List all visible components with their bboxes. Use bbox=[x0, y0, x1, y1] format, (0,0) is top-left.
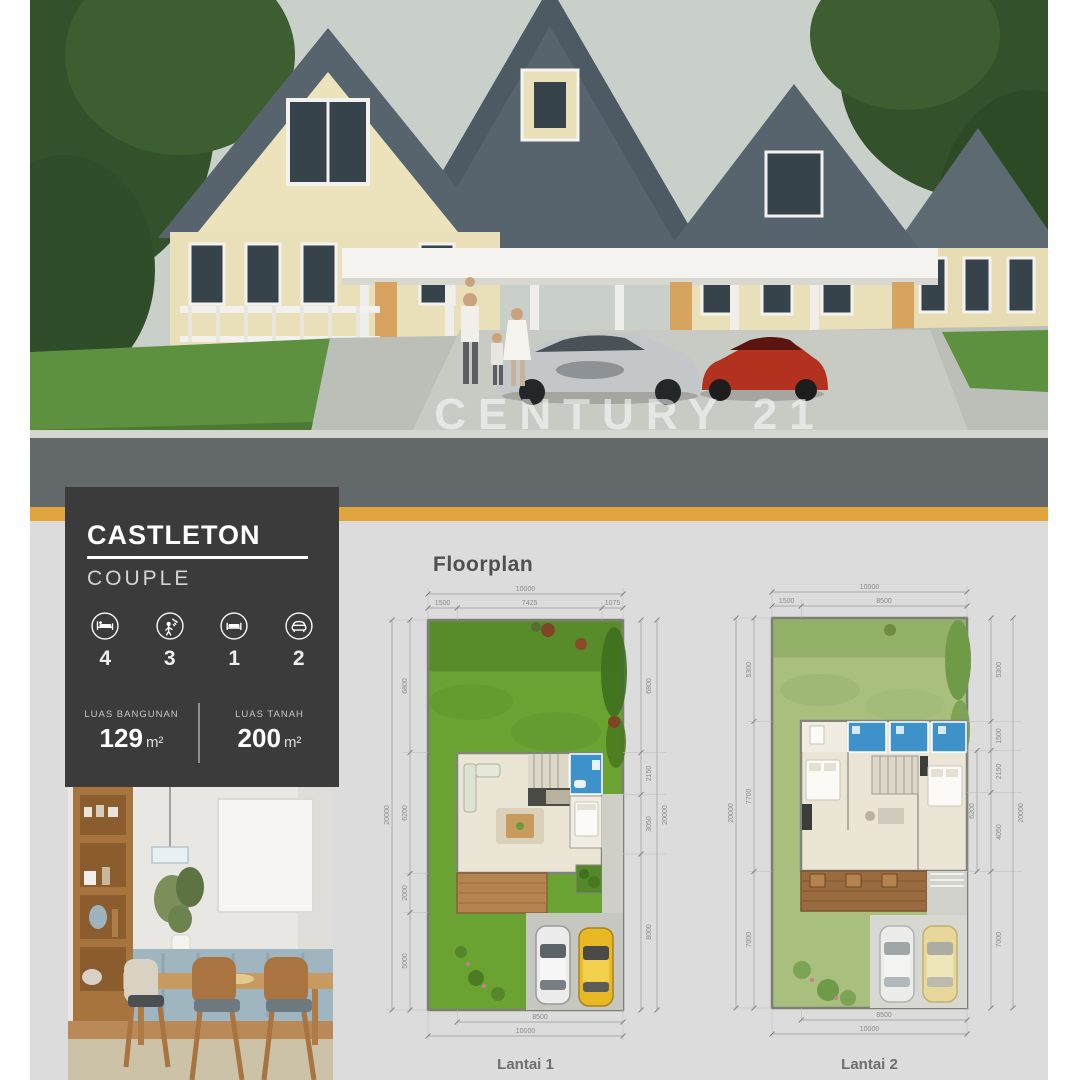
dim-bottom-inner: 8500 bbox=[532, 1014, 548, 1021]
house-photo: CENTURY 21 bbox=[30, 0, 1048, 507]
building-area-label: LUAS BANGUNAN bbox=[65, 709, 198, 720]
dim-right-seg: 3050 bbox=[646, 816, 653, 832]
dim-top-seg: 1075 bbox=[605, 600, 621, 607]
dim-right-inner: 6200 bbox=[969, 803, 976, 819]
title-underline bbox=[87, 556, 308, 559]
land-area-label: LUAS TANAH bbox=[200, 709, 339, 720]
floorplan-lantai-1: 10000 1500 7425 1075 20000 6800 6200 200… bbox=[376, 582, 676, 1052]
bedroom-count: 4 bbox=[99, 647, 111, 671]
car-yellow bbox=[579, 928, 613, 1006]
bed-icon bbox=[90, 611, 120, 641]
dim-left-total: 20000 bbox=[384, 805, 391, 825]
areas-row: LUAS BANGUNAN 129m² LUAS TANAH 200m² bbox=[65, 699, 339, 763]
dim-top-seg: 7425 bbox=[522, 600, 538, 607]
car-white bbox=[536, 926, 570, 1004]
dim-right-seg: 8000 bbox=[646, 924, 653, 940]
floorplan-heading: Floorplan bbox=[433, 553, 533, 577]
bathroom bbox=[932, 722, 966, 752]
carport-count: 2 bbox=[293, 647, 305, 671]
stairs bbox=[872, 756, 918, 794]
century21-watermark: CENTURY 21 bbox=[180, 390, 1048, 440]
dim-left-seg: 2000 bbox=[402, 885, 409, 901]
dim-bottom-inner: 8500 bbox=[876, 1012, 892, 1019]
dim-left-seg: 7700 bbox=[746, 789, 753, 805]
car-yellow-faded bbox=[923, 926, 957, 1002]
side-path bbox=[602, 794, 623, 913]
dim-left-seg: 5300 bbox=[746, 662, 753, 678]
property-type: COUPLE bbox=[87, 567, 191, 591]
interior-art bbox=[68, 787, 333, 1080]
building-area-value: 129m² bbox=[65, 723, 198, 754]
rug bbox=[68, 1039, 333, 1080]
dim-right-seg: 2150 bbox=[996, 764, 1003, 780]
dim-left-seg: 6800 bbox=[402, 678, 409, 694]
wood-shelf bbox=[73, 787, 133, 1035]
livingroom-count: 1 bbox=[228, 647, 240, 671]
lantai-2-label: Lantai 2 bbox=[772, 1056, 967, 1073]
dim-bottom-total: 10000 bbox=[860, 1026, 880, 1033]
car-icon bbox=[284, 611, 314, 641]
livingroom-stat: 1 bbox=[202, 611, 267, 671]
property-name: CASTLETON bbox=[87, 520, 261, 551]
dim-right-seg: 5300 bbox=[996, 662, 1003, 678]
property-info-card: CASTLETON COUPLE 4 3 bbox=[65, 487, 339, 787]
bathroom-stat: 3 bbox=[138, 611, 203, 671]
building-area-number: 129 bbox=[100, 723, 143, 753]
stats-row: 4 3 1 bbox=[73, 611, 331, 671]
balcony-chair bbox=[882, 874, 897, 887]
wall-frame bbox=[218, 799, 313, 912]
land-area-value: 200m² bbox=[200, 723, 339, 754]
land-area-unit: m² bbox=[284, 734, 302, 751]
wardrobe bbox=[802, 804, 812, 830]
lantai-1-label: Lantai 1 bbox=[428, 1056, 623, 1073]
dim-bottom-total: 10000 bbox=[516, 1028, 536, 1035]
dim-left-total: 20000 bbox=[728, 803, 735, 823]
bathroom-count: 3 bbox=[164, 647, 176, 671]
interior-photo bbox=[68, 787, 333, 1080]
dim-left-seg: 7000 bbox=[746, 932, 753, 948]
sofa-icon bbox=[219, 611, 249, 641]
dim-top-seg: 8500 bbox=[876, 598, 892, 605]
land-area: LUAS TANAH 200m² bbox=[200, 699, 339, 763]
dim-right-seg: 6800 bbox=[646, 678, 653, 694]
dim-top-seg: 1500 bbox=[779, 598, 795, 605]
dim-right-seg: 4050 bbox=[996, 824, 1003, 840]
wardrobe bbox=[920, 756, 928, 776]
bathroom bbox=[890, 722, 928, 752]
building-area: LUAS BANGUNAN 129m² bbox=[65, 699, 198, 763]
dim-left-seg: 5000 bbox=[402, 953, 409, 969]
car-white-faded bbox=[880, 926, 914, 1002]
dim-left-seg: 6200 bbox=[402, 805, 409, 821]
dim-top-total: 10000 bbox=[516, 586, 536, 593]
carport-stat: 2 bbox=[267, 611, 332, 671]
dim-right-seg: 1500 bbox=[996, 728, 1003, 744]
desk bbox=[878, 808, 904, 824]
flyer-page: CENTURY 21 CASTLETON COUPLE 4 bbox=[0, 0, 1080, 1080]
bedroom-stat: 4 bbox=[73, 611, 138, 671]
balcony-chair bbox=[810, 874, 825, 887]
dim-right-seg: 2150 bbox=[646, 766, 653, 782]
balcony-chair bbox=[846, 874, 861, 887]
sofa bbox=[464, 764, 476, 812]
dim-right-seg: 7000 bbox=[996, 932, 1003, 948]
dim-top-total: 10000 bbox=[860, 584, 880, 591]
dim-right-total: 20000 bbox=[1018, 803, 1025, 823]
building-area-unit: m² bbox=[146, 734, 164, 751]
bath-icon bbox=[155, 611, 185, 641]
dim-top-seg: 1500 bbox=[435, 600, 451, 607]
land-area-number: 200 bbox=[238, 723, 281, 753]
side-path bbox=[927, 871, 967, 915]
floorplan-lantai-2: 10000 1500 8500 20000 5300 7700 7000 620… bbox=[720, 580, 1032, 1050]
dim-right-total: 20000 bbox=[662, 805, 669, 825]
